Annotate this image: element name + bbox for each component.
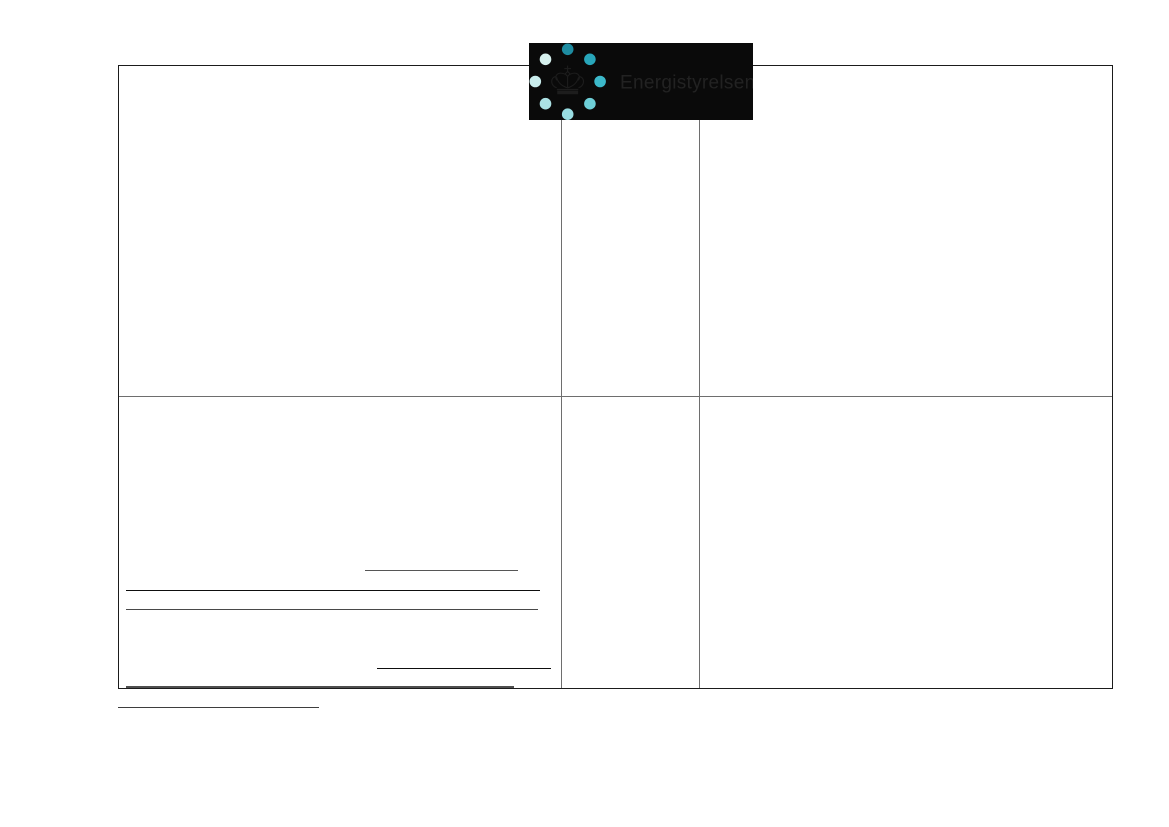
svg-text:Energistyrelsen: Energistyrelsen	[620, 72, 753, 93]
